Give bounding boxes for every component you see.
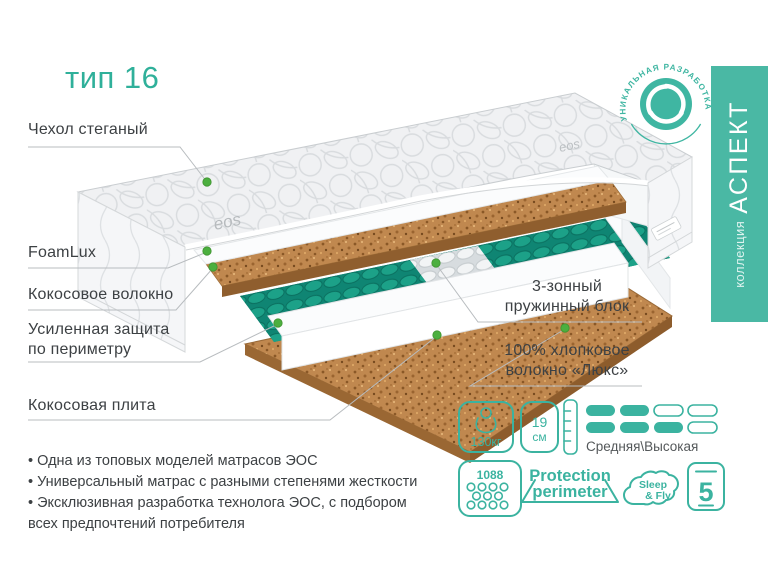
callout-springs: 3-зонный пружинный блок xyxy=(482,277,652,317)
callout-perimeter: Усиленная защита по периметру xyxy=(28,320,170,360)
dot-foamlux xyxy=(203,247,211,255)
callout-cover: Чехол стеганый xyxy=(28,120,148,140)
spring-count-value: 1088 xyxy=(477,468,504,482)
firmness-label: Средняя\Высокая xyxy=(586,439,698,454)
feature-item: Эксклюзивная разработка технолога ЭОС, с… xyxy=(28,493,458,535)
sleep-and-fly-brand-icon: Sleep & Fly xyxy=(624,471,678,504)
feature-list: Одна из топовых моделей матрасов ЭОС Уни… xyxy=(28,451,458,535)
dot-perimeter xyxy=(274,319,282,327)
feature-item: Одна из топовых моделей матрасов ЭОС xyxy=(28,451,458,472)
collection-name: АСПЕКТ xyxy=(725,100,754,214)
firmness-indicator: Средняя\Высокая xyxy=(586,405,717,454)
height-value: 19 xyxy=(532,414,548,430)
callout-cotton: 100% хлопковое волокно «Люкс» xyxy=(482,341,652,381)
infographic-canvas: eos eos У xyxy=(0,0,768,568)
weight-limit-value: 130кг xyxy=(471,435,502,449)
height-unit: см xyxy=(532,430,546,444)
page-title: тип 16 xyxy=(65,60,159,96)
callout-coco-plate: Кокосовая плита xyxy=(28,396,156,416)
dot-cotton xyxy=(561,324,569,332)
dot-coco-plate xyxy=(433,331,441,339)
dot-coco-fiber xyxy=(209,263,217,271)
protection-perimeter-icon: Protection perimeter xyxy=(522,467,618,502)
dot-cover xyxy=(203,178,211,186)
collection-sidebar: коллекция АСПЕКТ xyxy=(711,66,768,322)
dot-springs xyxy=(432,259,440,267)
feature-item: Универсальный матрас с разными степенями… xyxy=(28,472,458,493)
warranty-value: 5 xyxy=(698,477,713,507)
collection-label: коллекция xyxy=(732,221,747,288)
spring-count-icon: 1088 xyxy=(459,461,521,516)
callout-foamlux: FoamLux xyxy=(28,243,96,263)
ruler-icon xyxy=(564,400,577,454)
brand-word-2: & Fly xyxy=(645,490,671,502)
warranty-icon: 5 xyxy=(688,463,724,510)
callout-coco-fiber: Кокосовое волокно xyxy=(28,285,173,305)
protection-word-2: perimeter xyxy=(532,483,608,501)
